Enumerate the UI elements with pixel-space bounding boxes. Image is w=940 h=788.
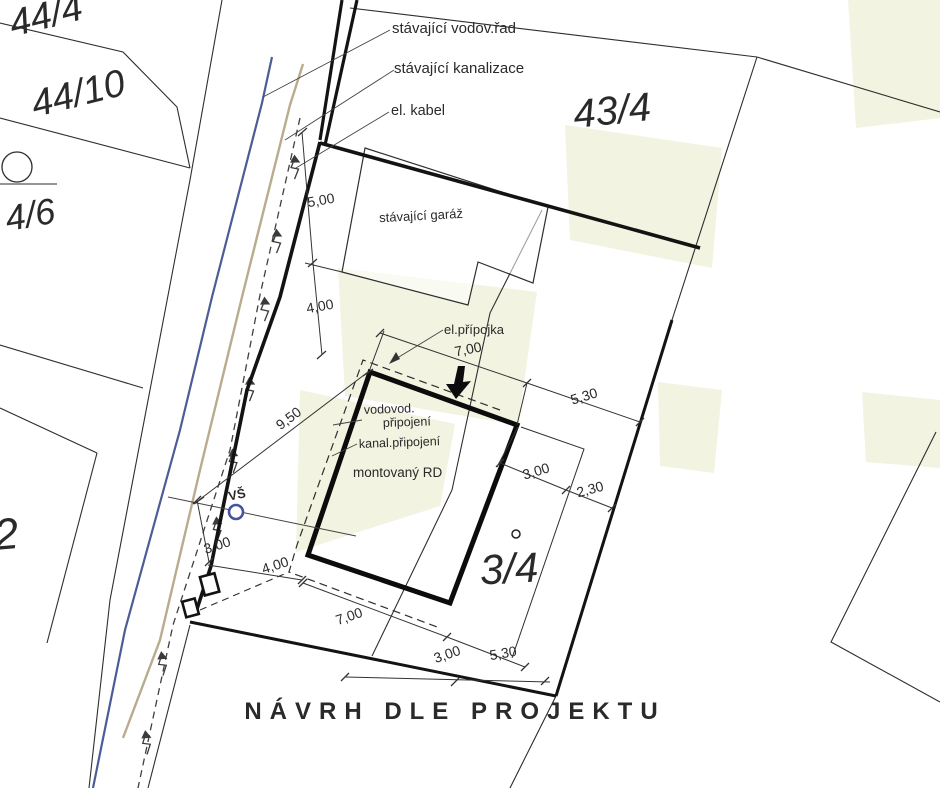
water-conn-label-2: připojení [383, 414, 432, 430]
el-cable-line [138, 118, 300, 788]
parcel-44-10: 44/10 [27, 62, 129, 126]
parcel-2: 2 [0, 509, 20, 560]
water-main-line [93, 57, 272, 788]
road-left-edge [89, 0, 222, 788]
dim-label-4-00-upper: 4,00 [305, 296, 335, 317]
parcel-44-4: 44/4 [5, 0, 87, 45]
boundary-2-right [47, 453, 97, 643]
boundary-2-top [0, 408, 97, 453]
patch-right-edge [862, 392, 940, 468]
parcel-43-4: 43/4 [571, 85, 653, 137]
legend-labels: stávající vodov.řad stávající kanalizace… [391, 20, 524, 119]
dim-label-3-00-road: 3,00 [202, 533, 233, 557]
map-symbol-circle [2, 152, 32, 182]
el-cable-arrows [139, 154, 303, 755]
patch-east-boundary [658, 382, 722, 473]
dim-label-5-30-top: 5,30 [569, 384, 600, 407]
site-plan-drawing: 44/4 44/10 4/6 2 43/4 3/4 stávající vodo… [0, 0, 940, 788]
dim-label-2-30: 2,30 [575, 478, 606, 501]
building-bottom-right [831, 432, 940, 702]
dim-label-7-00-bottom: 7,00 [334, 604, 365, 628]
sewer-line [123, 64, 303, 738]
utility-box-2 [182, 598, 199, 617]
boundary-4-6 [0, 345, 143, 388]
el-connection-label: el.přípojka [444, 322, 505, 337]
utility-box-1 [200, 573, 219, 595]
leader-water-main [263, 30, 390, 97]
legend-el-cable: el. kabel [391, 103, 445, 119]
patch-top-right [848, 0, 940, 128]
house-label: montovaný RD [353, 465, 443, 480]
boundary-east-thick [556, 320, 672, 696]
legend-water-main: stávající vodov.řad [392, 20, 516, 37]
east-offset-line [512, 427, 584, 658]
parcel-3-4: 3/4 [479, 544, 540, 594]
dim-label-5-00: 5,00 [306, 190, 336, 211]
page-title: NÁVRH DLE PROJEKTU [244, 697, 665, 725]
water-shaft-circle [229, 505, 243, 519]
legend-sewer: stávající kanalizace [394, 60, 524, 77]
road-right-thin-continuation [148, 625, 190, 788]
dim-label-4-00-road: 4,00 [260, 553, 291, 577]
parcel-4-6: 4/6 [2, 190, 59, 239]
site-plan-page: 44/4 44/10 4/6 2 43/4 3/4 stávající vodo… [0, 0, 940, 788]
dim-bottom-5-30 [345, 677, 550, 682]
dim-label-3-00-bottom: 3,00 [432, 642, 463, 666]
boundary-44-10 [0, 118, 190, 168]
dim-label-3-00-east: 3,00 [521, 459, 552, 482]
parcel-3-4-dot [512, 530, 520, 538]
sewer-conn-label: kanal.připojení [359, 434, 441, 451]
dim-label-5-30-bottom: 5,30 [488, 643, 518, 664]
water-shaft-label: VŠ [227, 485, 247, 503]
